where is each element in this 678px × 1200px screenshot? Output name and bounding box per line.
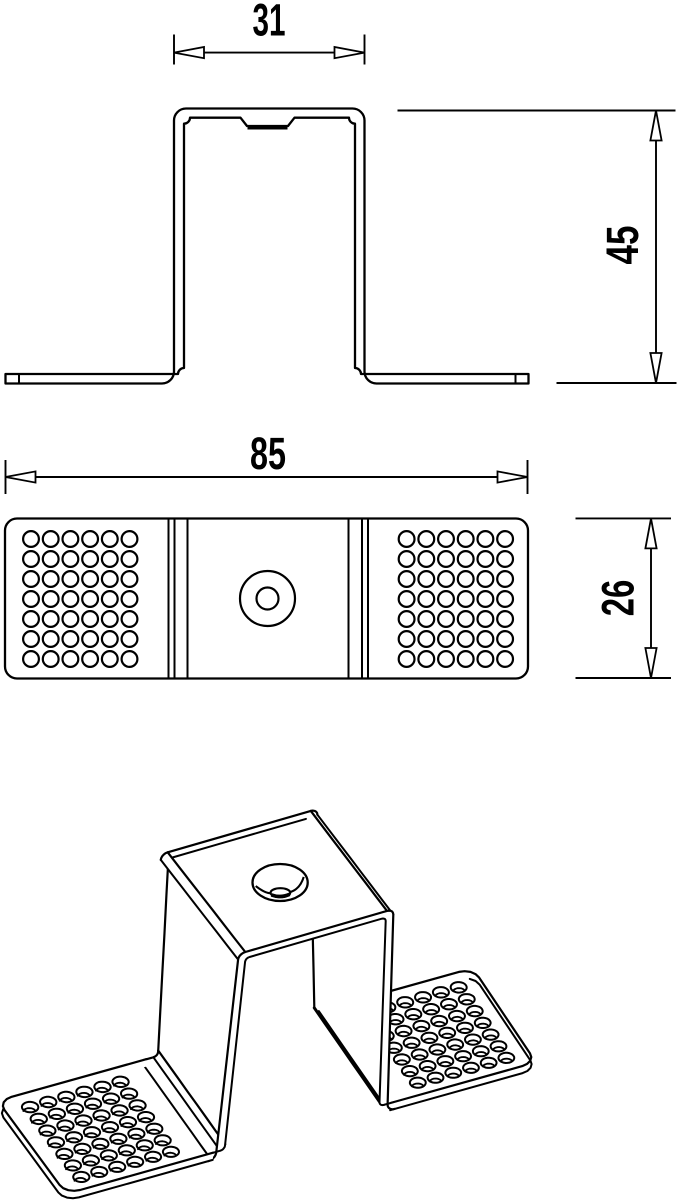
svg-text:31: 31 xyxy=(253,0,286,46)
svg-text:45: 45 xyxy=(597,226,648,265)
svg-text:26: 26 xyxy=(593,580,644,617)
svg-text:85: 85 xyxy=(250,428,286,479)
